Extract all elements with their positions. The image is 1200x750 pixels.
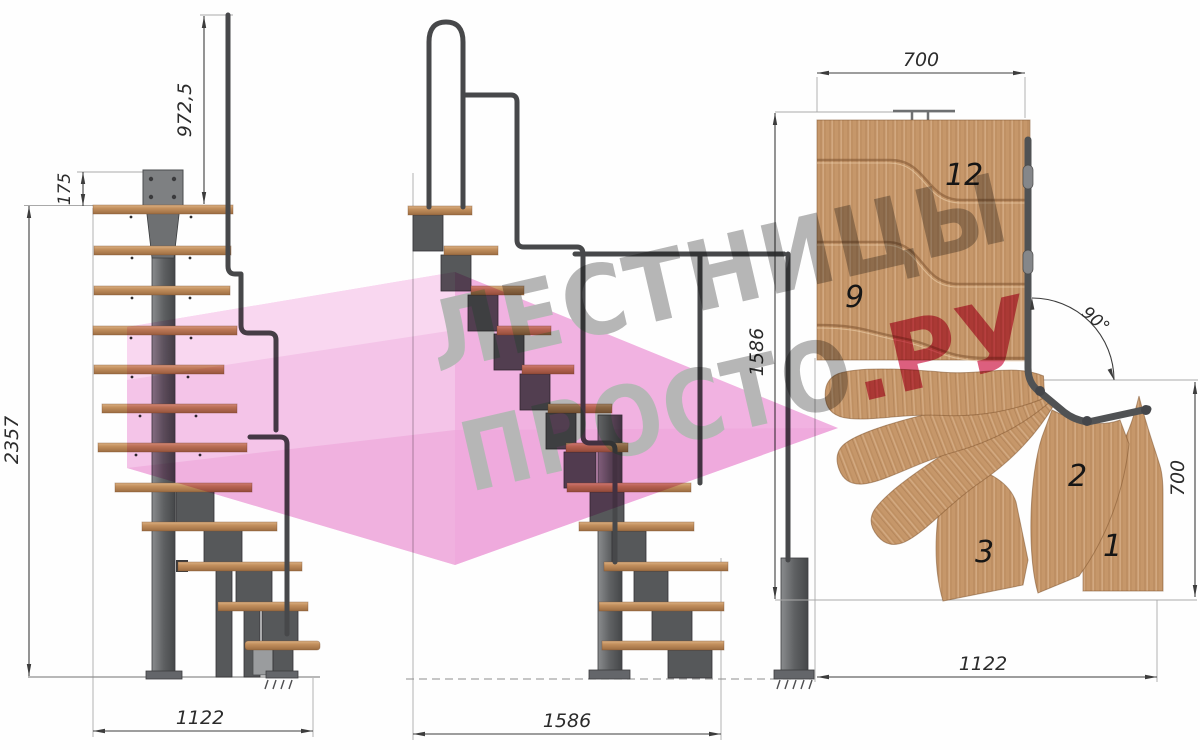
dim-plan-right-width-label: 700 (1167, 460, 1189, 496)
step-number-2: 2 (1068, 459, 1087, 494)
dim-left-run-label: 1122 (176, 707, 224, 729)
column-foot (589, 670, 630, 679)
staircase-drawing-page: 972,5 175 2357 1122 (0, 0, 1200, 750)
column-foot (146, 671, 182, 679)
column-foot (774, 670, 814, 679)
front-newel-column (781, 558, 808, 678)
dim-front-run-label: 1586 (543, 710, 591, 732)
rail-joint (1035, 386, 1045, 396)
dim-handrail-height-label: 972,5 (174, 83, 196, 137)
plate-bolt (172, 177, 176, 181)
support-post (216, 566, 232, 677)
dim-plate-offset-label: 175 (55, 173, 75, 205)
plate-bolt (149, 195, 153, 199)
plate-bolt (172, 195, 176, 199)
dim-turn-angle-label: 90° (1077, 303, 1113, 338)
step-number-3: 3 (975, 535, 994, 570)
dim-plan-bottom-length-label: 1122 (959, 653, 1007, 675)
angle-arc (1032, 298, 1114, 380)
step-number-1: 1 (1103, 529, 1122, 564)
rail-joint (1141, 405, 1151, 415)
front-view-dimensions: 1586 (413, 710, 721, 736)
plate-bolt (149, 177, 153, 181)
dim-total-height-label: 2357 (1, 416, 23, 464)
anchor-ticks (265, 680, 292, 689)
drawing-canvas: 972,5 175 2357 1122 (0, 0, 1200, 750)
rail-sleeve (1023, 165, 1033, 189)
rail-joint (1082, 416, 1092, 426)
handrail-loop (429, 22, 463, 207)
step-module (262, 606, 298, 646)
rail-sleeve (1023, 250, 1033, 274)
top-mount-plate (143, 170, 183, 207)
anchor-ticks (777, 680, 812, 689)
post-foot (266, 671, 298, 678)
dim-plan-top-width-label: 700 (903, 49, 939, 71)
